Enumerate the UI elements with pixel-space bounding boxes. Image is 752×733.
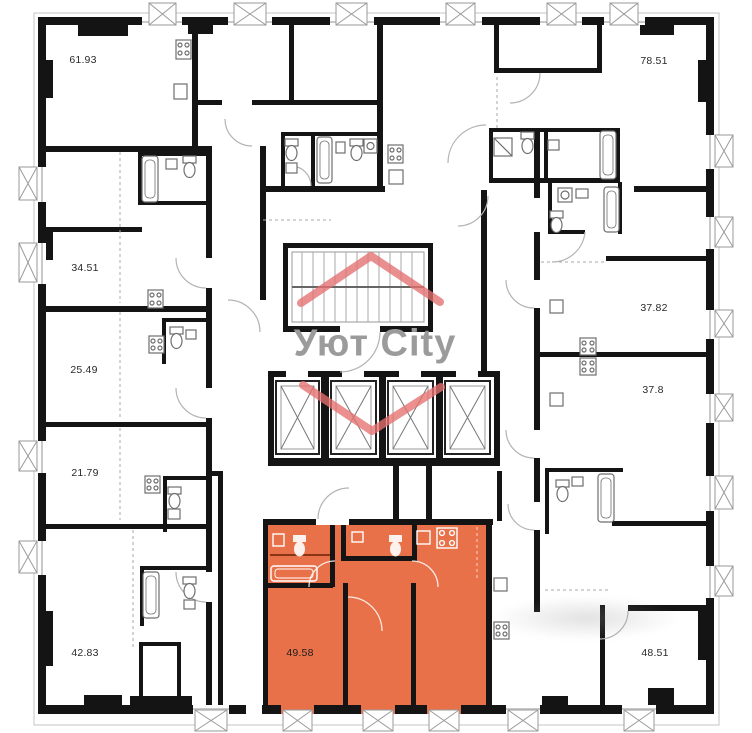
stove-icon: [580, 358, 596, 375]
sink-icon: [166, 159, 177, 169]
sink-icon: [336, 142, 345, 153]
sink-icon: [286, 163, 297, 173]
apartment-area-label: 37.82: [640, 302, 667, 314]
bathtub-icon: [317, 137, 332, 183]
fridge-icon: [174, 84, 187, 99]
fridge-icon: [550, 393, 563, 406]
stove-icon: [388, 145, 403, 163]
shower-icon: [494, 138, 512, 156]
stove-icon: [148, 290, 163, 308]
bathtub-icon: [604, 187, 619, 232]
apartment-area-label: 37.8: [642, 384, 663, 396]
washer-icon: [364, 139, 377, 153]
toilet-icon: [170, 327, 183, 349]
apartment-49-58-region[interactable]: [267, 519, 490, 714]
bathtub-icon: [142, 156, 158, 202]
fridge-icon: [389, 170, 403, 184]
stove-icon: [580, 338, 596, 355]
apartment-area-label: 34.51: [71, 262, 98, 274]
floor-plan: 61.93 34.51 25.49 21.79 42.83 78.51 37.8…: [0, 0, 752, 733]
stove-icon: [145, 476, 160, 493]
brand-logo-text: Уют City: [294, 323, 457, 366]
bathtub-icon: [598, 474, 614, 522]
sink-icon: [576, 189, 588, 198]
bathtub-icon: [143, 572, 159, 618]
apartment-area-label: 25.49: [70, 364, 97, 376]
sink-icon: [186, 330, 196, 339]
toilet-icon: [183, 577, 196, 599]
apartment-area-label: 42.83: [71, 647, 98, 659]
toilet-icon: [550, 211, 563, 233]
stove-icon: [176, 40, 191, 59]
apartment-area-label: 61.93: [69, 54, 96, 66]
sink-icon: [168, 509, 180, 519]
toilet-icon: [556, 480, 569, 502]
toilet-icon: [285, 139, 298, 161]
fridge-icon: [494, 578, 507, 591]
sink-icon: [548, 140, 559, 150]
stove-icon: [149, 336, 164, 353]
bathtub-icon: [600, 131, 616, 179]
apartment-area-label: 48.51: [641, 647, 668, 659]
toilet-icon: [183, 156, 196, 178]
apartment-area-label: 21.79: [71, 467, 98, 479]
fridge-icon: [550, 300, 563, 313]
apartment-area-label: 78.51: [640, 55, 667, 67]
washer-icon: [558, 188, 572, 202]
toilet-icon: [168, 487, 181, 509]
sink-icon: [572, 477, 583, 486]
watermark: [492, 596, 682, 640]
toilet-icon: [350, 139, 363, 161]
toilet-icon: [521, 132, 534, 154]
sink-icon: [184, 600, 195, 609]
